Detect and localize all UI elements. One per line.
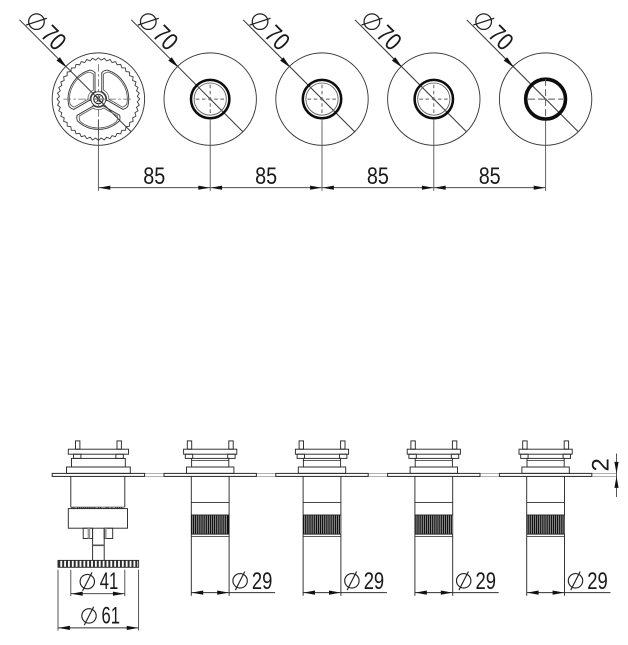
svg-text:85: 85 xyxy=(255,163,277,190)
svg-text:29: 29 xyxy=(364,568,385,595)
svg-text:2: 2 xyxy=(588,458,615,471)
svg-text:85: 85 xyxy=(143,163,165,190)
svg-text:41: 41 xyxy=(100,568,119,595)
svg-text:29: 29 xyxy=(252,568,273,595)
svg-text:85: 85 xyxy=(367,163,389,190)
svg-text:29: 29 xyxy=(587,568,608,595)
svg-text:61: 61 xyxy=(102,602,121,629)
svg-text:85: 85 xyxy=(479,163,501,190)
svg-text:29: 29 xyxy=(476,568,497,595)
